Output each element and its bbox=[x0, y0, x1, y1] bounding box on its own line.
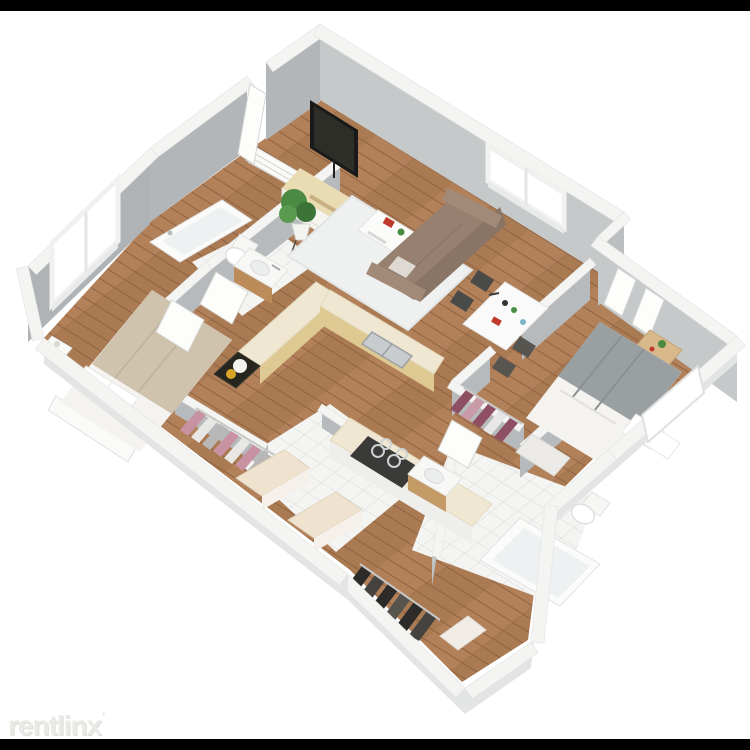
watermark: rentlinx rentlinx ' bbox=[8, 709, 105, 742]
bottom-letterbox-bar bbox=[0, 739, 750, 750]
watermark-text: rentlinx bbox=[8, 710, 103, 741]
top-letterbox-bar bbox=[0, 0, 750, 11]
floorplan-3d-render: rentlinx rentlinx ' bbox=[0, 0, 750, 750]
floorplan-screenshot: rentlinx rentlinx ' bbox=[0, 0, 750, 750]
